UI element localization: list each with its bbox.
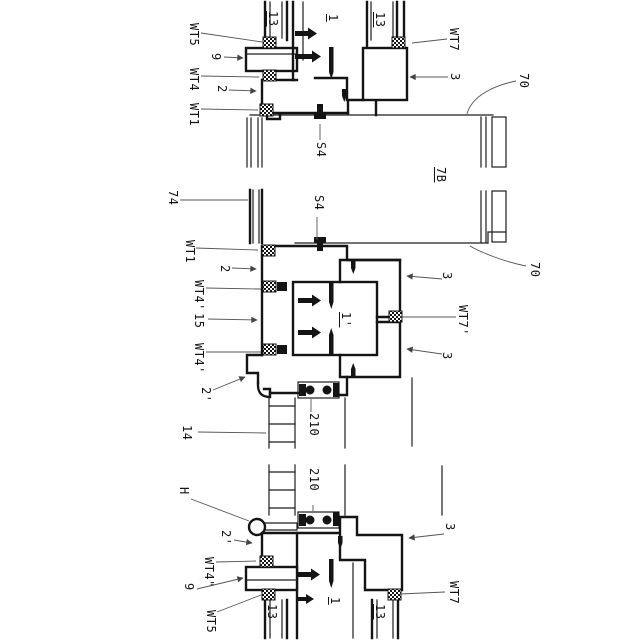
label-s4-top: S4 — [314, 142, 327, 157]
label-2-middle: 2 — [218, 265, 231, 273]
glazing-pin — [329, 559, 334, 588]
label-70-top: 70 — [517, 73, 530, 88]
ladder-track-14 — [269, 398, 295, 448]
label-13-top-right: 13 — [373, 12, 386, 27]
label-1p: 1' — [339, 312, 352, 327]
gasket-wt1-middle — [262, 245, 275, 256]
sensor-s4-top — [314, 104, 326, 119]
screw-arrow — [297, 594, 314, 604]
interlock-profile-3-bottom — [340, 517, 402, 590]
label-wt4pp: WT4" — [202, 557, 215, 588]
glazing-pin — [329, 47, 334, 79]
cover-profile-9-top — [246, 48, 297, 71]
label-3-middle-lower: 3 — [440, 352, 453, 360]
gasket-wt5-bottom — [262, 589, 275, 600]
label-15: 15 — [192, 313, 205, 328]
gasket-wt4p-upper — [263, 281, 276, 292]
label-wt4p-upper: WT4' — [192, 280, 205, 311]
label-14: 14 — [180, 425, 193, 440]
patent-figure-canvas: WT5 9 WT4 2 WT1 13 1 13 WT7 3 70 S4 7B 7… — [0, 0, 640, 640]
roller-assembly-210-middle — [298, 382, 339, 398]
label-wt4-top: WT4 — [187, 68, 200, 91]
label-3-bottom: 3 — [443, 523, 456, 531]
gasket-wt7-bottom — [388, 589, 401, 600]
interlock-profile-3-top — [363, 48, 407, 100]
gasket-wt4p-lower — [263, 344, 276, 355]
label-wt4p-lower: WT4' — [192, 343, 205, 374]
gasket-clip — [277, 345, 287, 354]
glazing-pin — [351, 261, 356, 274]
label-wt1-middle: WT1 — [183, 240, 196, 263]
section-middle — [247, 190, 412, 448]
ladder-track-14-lower — [269, 465, 295, 515]
label-13-top-left: 13 — [266, 11, 279, 26]
label-h: H — [177, 487, 190, 495]
gasket-wt7-top — [392, 37, 405, 48]
label-wt5-top: WT5 — [187, 23, 200, 46]
label-2p-bottom: 2' — [219, 530, 232, 545]
cover-profile-9-bottom — [246, 567, 297, 590]
label-wt1-top: WT1 — [187, 103, 200, 126]
label-wt5-bottom: WT5 — [204, 610, 217, 633]
label-wt7-bottom: WT7 — [447, 581, 460, 604]
label-70-middle: 70 — [528, 262, 541, 277]
gasket-wt1-top — [260, 104, 273, 116]
label-2p-middle: 2' — [199, 387, 212, 402]
gasket-wt7p — [389, 311, 402, 322]
label-9-top: 9 — [209, 53, 222, 61]
glazing-pin — [351, 363, 356, 376]
label-3-middle-upper: 3 — [440, 272, 453, 280]
gasket-wt4-top — [263, 70, 276, 81]
screw-arrow — [295, 28, 317, 40]
label-210-bottom: 210 — [307, 468, 320, 491]
label-s4-middle: S4 — [312, 195, 325, 210]
label-7b: 7B — [434, 167, 447, 182]
screw-arrow — [297, 569, 320, 581]
label-1-bottom: 1 — [328, 597, 341, 605]
label-13-bottom-right: 13 — [373, 604, 386, 619]
label-1-top: 1 — [326, 14, 339, 22]
gasket-wt4pp — [260, 556, 273, 567]
label-2-top: 2 — [215, 85, 228, 93]
panel-7b — [247, 115, 506, 243]
gasket-wt5-top — [263, 37, 276, 48]
center-profile-15 — [293, 282, 377, 355]
label-wt7p: WT7' — [456, 305, 469, 336]
sensor-s4-middle — [314, 237, 326, 251]
screw-arrow — [295, 51, 321, 63]
gasket-clip — [277, 282, 287, 291]
patent-drawing — [0, 0, 640, 640]
label-74: 74 — [166, 190, 179, 205]
label-9-bottom: 9 — [182, 583, 195, 591]
label-3-top: 3 — [448, 73, 461, 81]
clamp-profile-74 — [250, 190, 262, 243]
roller-assembly-210-bottom — [298, 512, 339, 528]
label-13-bottom-left: 13 — [265, 604, 278, 619]
label-wt7-top: WT7 — [447, 28, 460, 51]
label-210-middle: 210 — [307, 413, 320, 436]
